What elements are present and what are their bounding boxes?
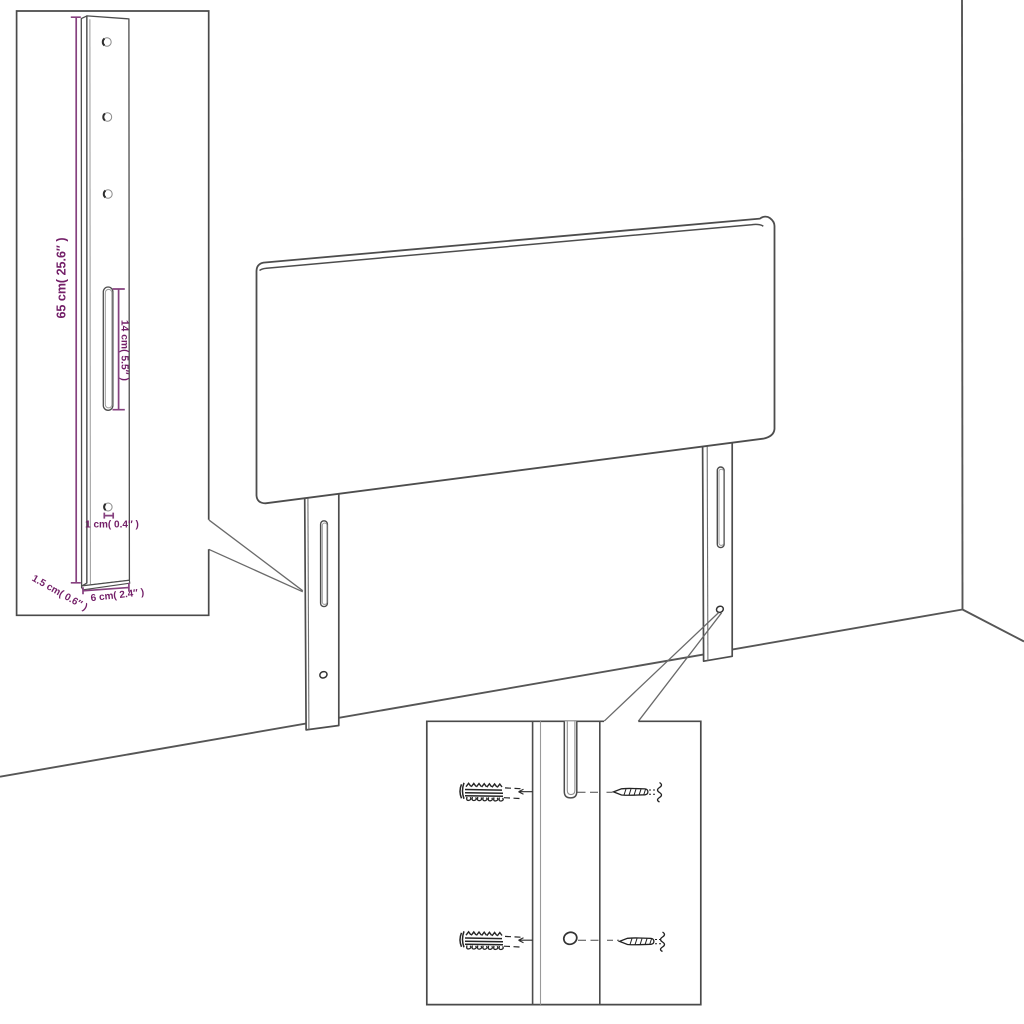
svg-text:1 cm( 0.4″ ): 1 cm( 0.4″ ) xyxy=(85,520,139,531)
svg-text:65 cm( 25.6″ ): 65 cm( 25.6″ ) xyxy=(55,237,69,318)
svg-text:14 cm( 5.5″ ): 14 cm( 5.5″ ) xyxy=(119,320,130,381)
